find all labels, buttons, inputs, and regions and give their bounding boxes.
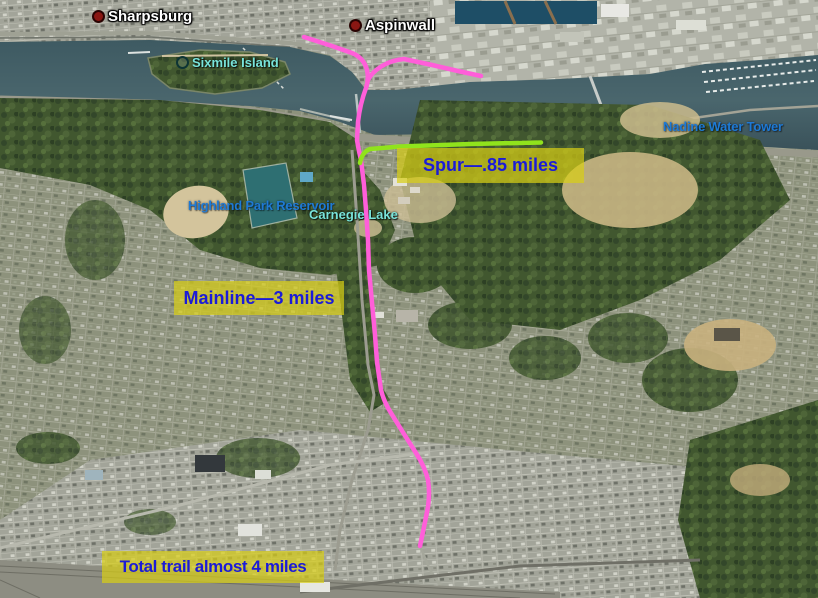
aspinwall-marker-icon: [349, 19, 362, 32]
label-nadine-water-tower: Nadine Water Tower: [663, 119, 783, 134]
label-sharpsburg: Sharpsburg: [92, 9, 192, 26]
label-sixmile-island: Sixmile Island: [176, 55, 279, 70]
sixmile-island-marker-icon: [176, 56, 189, 69]
aspinwall-label-text: Aspinwall: [365, 18, 435, 35]
place-labels: Sharpsburg Aspinwall Sixmile Island Nadi…: [0, 0, 818, 598]
satellite-map: Sharpsburg Aspinwall Sixmile Island Nadi…: [0, 0, 818, 598]
sixmile-island-label-text: Sixmile Island: [192, 55, 279, 70]
sharpsburg-marker-icon: [92, 10, 105, 23]
label-aspinwall: Aspinwall: [349, 18, 435, 35]
sharpsburg-label-text: Sharpsburg: [108, 9, 192, 26]
label-carnegie-lake: Carnegie Lake: [309, 207, 398, 222]
